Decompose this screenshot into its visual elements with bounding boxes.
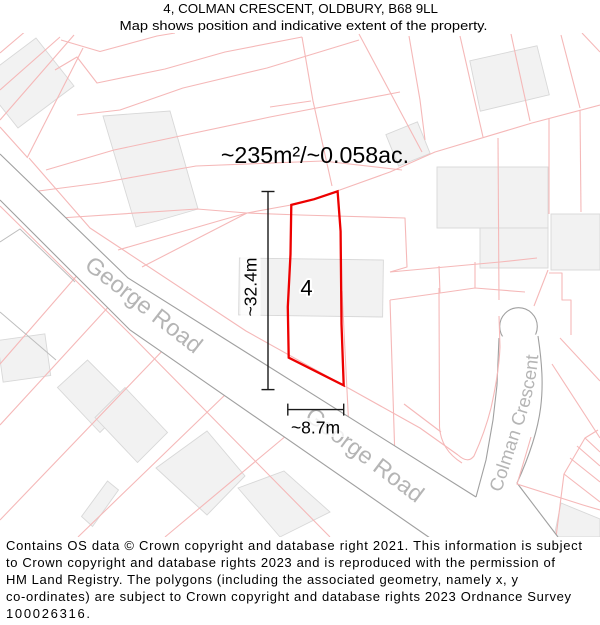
svg-text:HM Land Registry. The polygons: HM Land Registry. The polygons (includin…	[6, 572, 519, 587]
svg-text:4: 4	[300, 275, 312, 300]
svg-text:~235m²/~0.058ac.: ~235m²/~0.058ac.	[221, 142, 409, 168]
svg-text:to Crown copyright and databas: to Crown copyright and database rights 2…	[6, 555, 555, 570]
svg-text:Contains OS data © Crown copyr: Contains OS data © Crown copyright and d…	[6, 538, 582, 553]
svg-text:Map shows position and indicat: Map shows position and indicative extent…	[120, 18, 488, 33]
svg-text:~32.4m: ~32.4m	[241, 258, 261, 317]
svg-text:100026316.: 100026316.	[6, 606, 90, 621]
svg-text:4, COLMAN CRESCENT, OLDBURY, B: 4, COLMAN CRESCENT, OLDBURY, B68 9LL	[163, 1, 438, 16]
svg-text:~8.7m: ~8.7m	[291, 418, 340, 438]
svg-text:co-ordinates) are subject to C: co-ordinates) are subject to Crown copyr…	[6, 589, 572, 604]
